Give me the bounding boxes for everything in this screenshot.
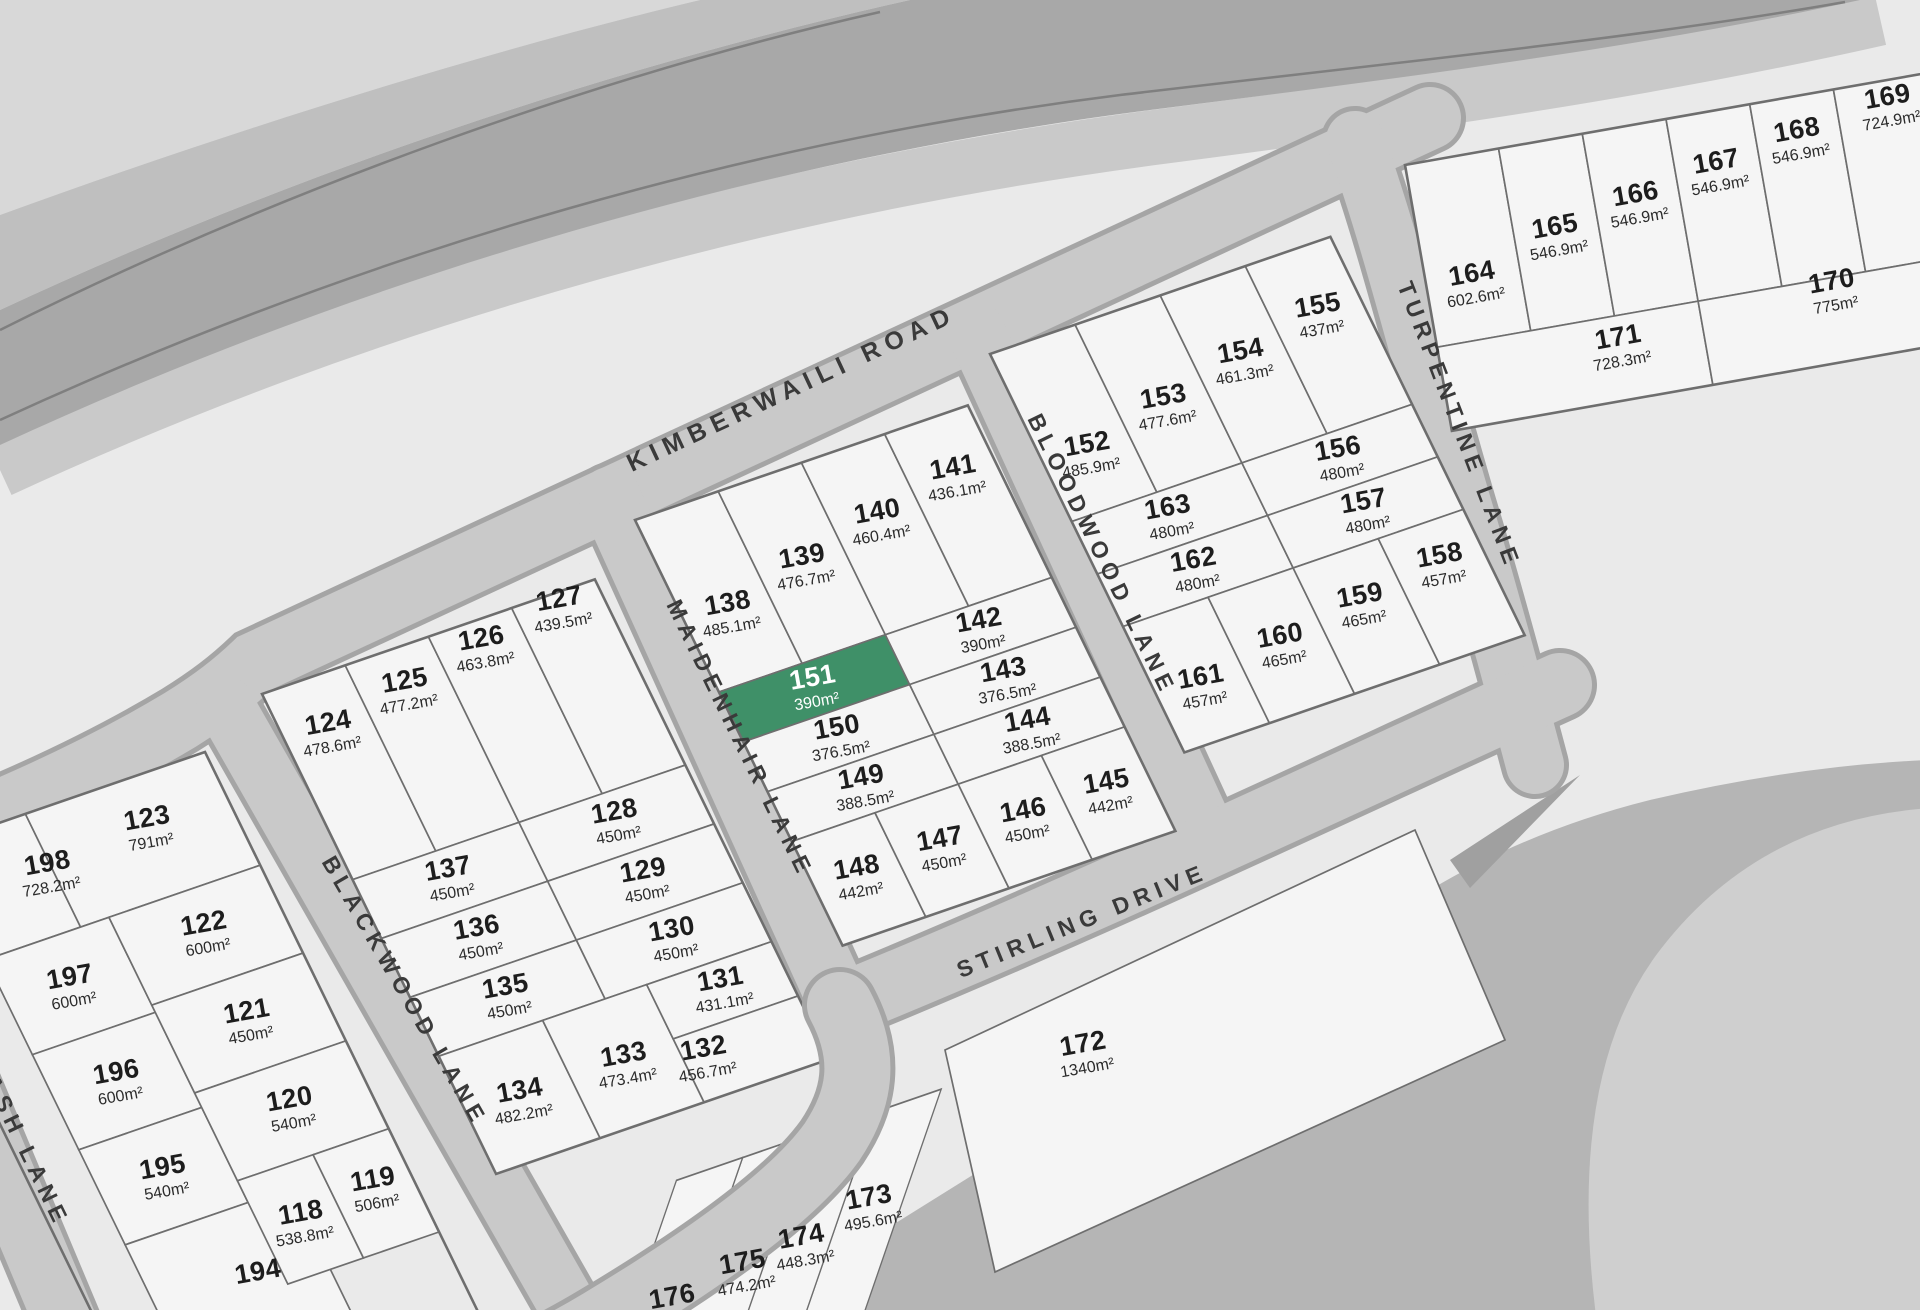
- subdivision-map: 123791m² 198728.2m² 122600m² 121450m² 12…: [0, 0, 1920, 1310]
